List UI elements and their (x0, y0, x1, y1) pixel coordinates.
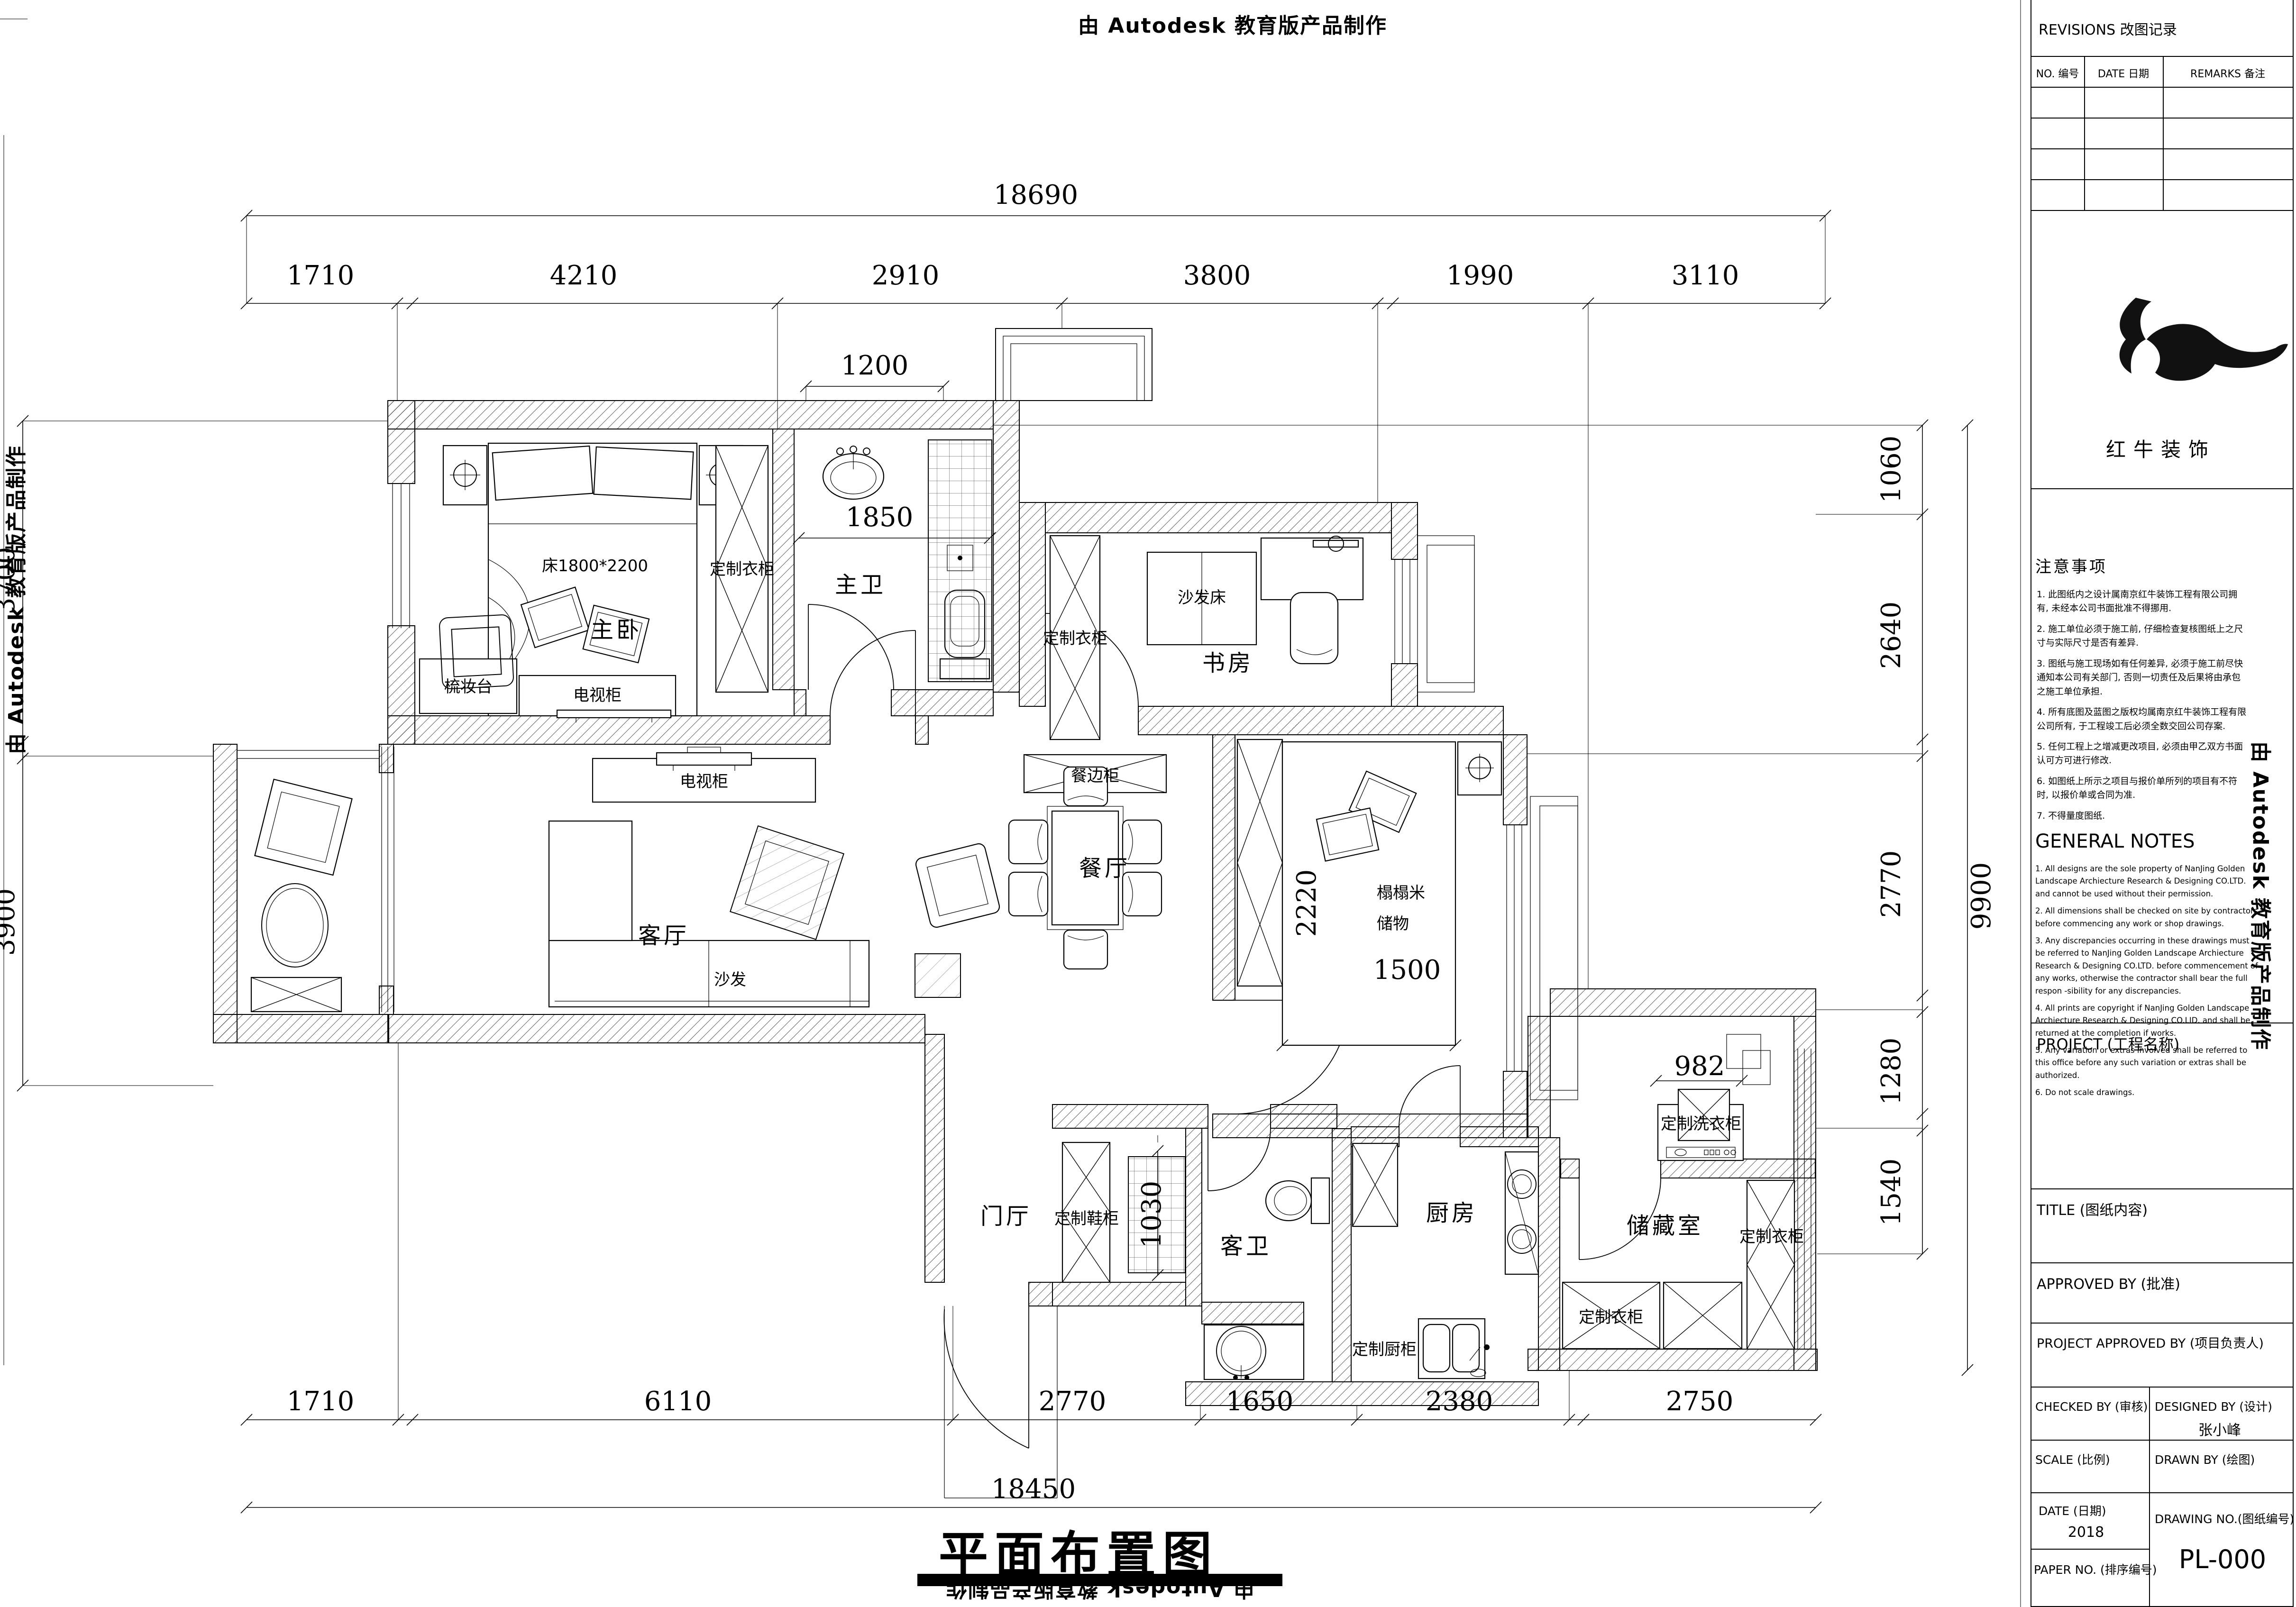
general-note-item: 6. Do not scale drawings. (2035, 1087, 2258, 1099)
drawing-no-row: DRAWING NO.(图纸编号) (2155, 1510, 2294, 1527)
label-bed-size: 床1800*2200 (542, 557, 648, 575)
master-bath-fixtures (823, 440, 992, 682)
dim-right-4: 1280 (1876, 1038, 1907, 1105)
dim-bot-6: 2750 (1666, 1386, 1734, 1417)
dim-bot-3: 2770 (1039, 1386, 1107, 1417)
label-tatami-1: 榻榻米 (1377, 884, 1425, 903)
note-item: 6. 如图纸上所示之项目与报价单所列的项目有不符时, 以报价单或合同为准. (2037, 775, 2248, 803)
duct-bay-top (996, 329, 1152, 401)
label-guest-bath: 客卫 (1220, 1233, 1271, 1260)
dim-982: 982 (1674, 1051, 1725, 1082)
revisions-col-no: NO. 编号 (2036, 65, 2079, 81)
note-item: 7. 不得量度图纸. (2037, 809, 2248, 823)
general-note-item: 2. All dimensions shall be checked on si… (2035, 905, 2258, 930)
label-laundry-cabinet: 定制洗衣柜 (1661, 1114, 1741, 1133)
bull-logo-icon (2091, 294, 2290, 403)
dim-1200: 1200 (841, 350, 909, 381)
title-row: TITLE (图纸内容) (2037, 1198, 2148, 1219)
watermark-top: 由 Autodesk 教育版产品制作 (1078, 9, 1387, 39)
dim-top-1: 1710 (287, 260, 355, 291)
label-dining: 餐厅 (1079, 855, 1130, 882)
note-item: 1. 此图纸内之设计属南京红牛装饰工程有限公司拥有, 未经本公司书面批准不得挪用… (2037, 588, 2248, 616)
label-bedroom-tv: 电视柜 (573, 686, 622, 705)
label-bedroom-wardrobe: 定制衣柜 (710, 560, 774, 579)
dim-1030: 1030 (1136, 1181, 1167, 1249)
date-value: 2018 (2068, 1524, 2104, 1541)
dim-bot-4: 1650 (1226, 1386, 1294, 1417)
dim-1500: 1500 (1373, 955, 1441, 986)
label-kitchen: 厨房 (1426, 1200, 1477, 1226)
dim-top-4: 3800 (1183, 260, 1251, 291)
label-storage-wardrobe-2: 定制衣柜 (1739, 1227, 1804, 1246)
dim-right-3: 2770 (1876, 850, 1907, 918)
guest-bath-fixtures (1204, 1178, 1329, 1380)
general-notes-list: 1. All designs are the sole property of … (2035, 863, 2258, 1104)
designed-by: DESIGNED BY (设计) (2155, 1397, 2272, 1415)
dim-top-5: 1990 (1446, 260, 1514, 291)
dim-1850: 1850 (846, 502, 914, 533)
label-sofa: 沙发 (714, 970, 746, 989)
label-sideboard: 餐边柜 (1071, 767, 1119, 785)
label-master-bedroom: 主卧 (591, 617, 642, 643)
notes-title: 注意事项 (2035, 554, 2107, 577)
label-sofa-bed: 沙发床 (1178, 588, 1226, 607)
dim-top-total: 18690 (994, 180, 1078, 210)
label-storage: 储藏室 (1627, 1213, 1703, 1239)
dim-right-total: 9900 (1966, 862, 1997, 930)
dim-right-2: 2640 (1876, 602, 1907, 669)
dim-top-6: 3110 (1672, 260, 1739, 291)
drawn-by: DRAWN BY (绘图) (2155, 1451, 2255, 1468)
dim-top-2: 4210 (550, 260, 618, 291)
balcony-slider-window (237, 747, 394, 1012)
label-master-bath: 主卫 (835, 572, 886, 598)
dim-top-3: 2910 (872, 260, 940, 291)
paper-no-row: PAPER NO. (排序编号) (2034, 1561, 2157, 1578)
revisions-header: REVISIONS 改图记录 (2039, 18, 2177, 39)
label-foyer: 门厅 (980, 1203, 1032, 1230)
note-item: 4. 所有底图及蓝图之版权均属南京红牛装饰工程有限公司所有, 于工程竣工后必须全… (2037, 705, 2248, 733)
project-row: PROJECT (工程名称) (2037, 1032, 2179, 1054)
label-kitchen-cabinet: 定制厨柜 (1352, 1340, 1417, 1359)
note-item: 2. 施工单位必须于施工前, 仔细检查复核图纸上之尺寸与实际尺寸是否有差异. (2037, 622, 2248, 650)
label-dresser: 梳妆台 (444, 677, 493, 696)
label-study-wardrobe: 定制衣柜 (1043, 629, 1107, 648)
dim-right-1: 1060 (1876, 436, 1907, 503)
plan-title-underline (917, 1574, 1282, 1586)
dim-left-2: 3900 (0, 888, 21, 956)
project-approved-row: PROJECT APPROVED BY (项目负责人) (2037, 1333, 2264, 1351)
general-notes-title: GENERAL NOTES (2035, 831, 2195, 852)
revisions-col-remarks: REMARKS 备注 (2190, 65, 2265, 81)
approved-row: APPROVED BY (批准) (2037, 1272, 2180, 1293)
kitchen-flue (1353, 1143, 1398, 1226)
label-tatami-2: 储物 (1377, 914, 1409, 933)
bedroom-window (393, 484, 410, 628)
balcony-furniture (251, 779, 352, 1012)
scale-row: SCALE (比例) (2035, 1451, 2110, 1468)
drawing-no-value: PL-000 (2179, 1544, 2266, 1574)
living-furniture (549, 747, 1001, 1007)
dim-bottom-total: 18450 (991, 1474, 1076, 1505)
notes-list: 1. 此图纸内之设计属南京红牛装饰工程有限公司拥有, 未经本公司书面批准不得挪用… (2037, 588, 2248, 830)
watermark-left: 由 Autodesk 教育版产品制作 (0, 445, 29, 754)
date-row: DATE (日期) (2039, 1502, 2106, 1519)
label-living: 客厅 (638, 922, 689, 949)
label-study: 书房 (1202, 650, 1253, 676)
logo-name: 红牛装饰 (2106, 434, 2216, 463)
dim-2220: 2220 (1291, 869, 1322, 937)
tatami-wardrobe (1237, 740, 1282, 986)
checked-by: CHECKED BY (审核) (2035, 1397, 2148, 1415)
revisions-col-date: DATE 日期 (2098, 65, 2149, 81)
floor-plan-drawing: 18690 1710 4210 2910 3800 1990 3110 1200… (0, 0, 2296, 1607)
general-note-item: 3. Any discrepancies occurring in these … (2035, 935, 2258, 997)
dim-right-5: 1540 (1876, 1159, 1907, 1226)
cad-floor-plan-sheet: { "watermark": "由 Autodesk 教育版产品制作", "sh… (0, 0, 2296, 1607)
label-shoe-cabinet: 定制鞋柜 (1054, 1209, 1119, 1228)
label-living-tv: 电视柜 (680, 772, 728, 791)
general-note-item: 1. All designs are the sole property of … (2035, 863, 2258, 900)
dim-bot-5: 2380 (1426, 1386, 1493, 1417)
label-storage-wardrobe-1: 定制衣柜 (1579, 1308, 1643, 1327)
dim-bot-1: 1710 (287, 1386, 355, 1417)
master-bath-door (808, 604, 894, 690)
tatami-furniture (1237, 740, 1501, 1051)
note-item: 5. 任何工程上之增减更改项目, 必须由甲乙双方书面认可方可进行修改. (2037, 740, 2248, 768)
designer-name: 张小峰 (2198, 1418, 2241, 1439)
dim-bot-2: 6110 (644, 1386, 712, 1417)
note-item: 3. 图纸与施工现场如有任何差异, 必须于施工前尽快通知本公司有关部门, 否则一… (2037, 657, 2248, 699)
balcony-cabinet (251, 977, 341, 1012)
shower-area (928, 440, 992, 682)
